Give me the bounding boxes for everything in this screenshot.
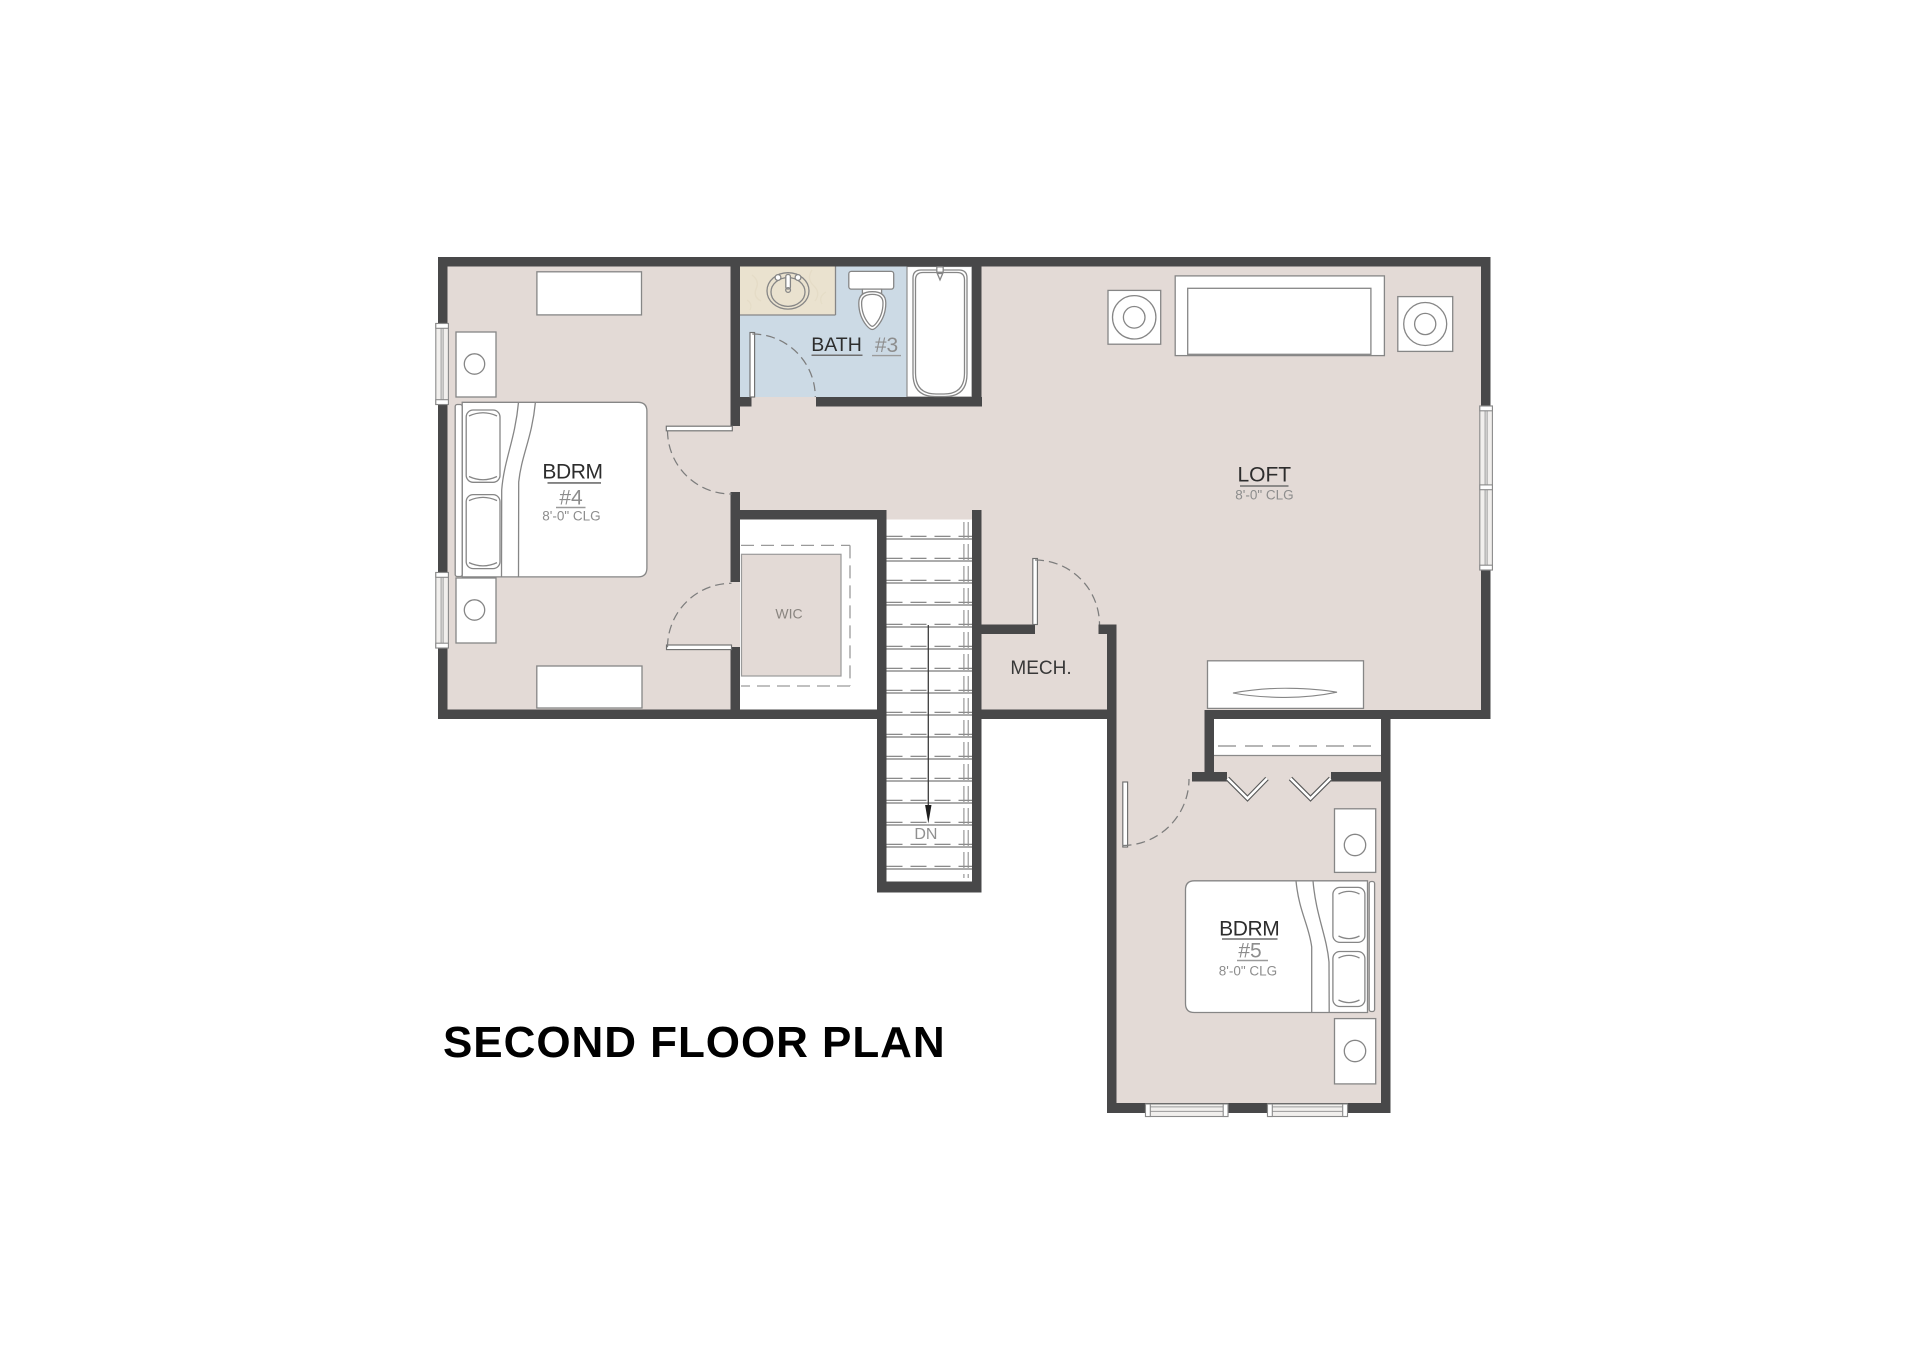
svg-text:8'-0" CLG: 8'-0" CLG <box>1219 964 1277 979</box>
svg-text:LOFT: LOFT <box>1237 464 1291 487</box>
svg-text:MECH.: MECH. <box>1010 658 1071 679</box>
svg-text:8'-0" CLG: 8'-0" CLG <box>1235 488 1293 503</box>
svg-text:SECOND FLOOR PLAN: SECOND FLOOR PLAN <box>443 1018 946 1067</box>
svg-text:#5: #5 <box>1238 940 1261 963</box>
svg-text:BDRM: BDRM <box>542 461 602 484</box>
svg-text:#4: #4 <box>559 487 583 510</box>
svg-text:#3: #3 <box>875 334 898 357</box>
svg-text:8'-0" CLG: 8'-0" CLG <box>542 509 600 524</box>
svg-text:BDRM: BDRM <box>1219 918 1279 941</box>
svg-text:DN: DN <box>914 826 937 843</box>
svg-text:BATH: BATH <box>811 334 862 356</box>
svg-text:WIC: WIC <box>775 605 802 621</box>
